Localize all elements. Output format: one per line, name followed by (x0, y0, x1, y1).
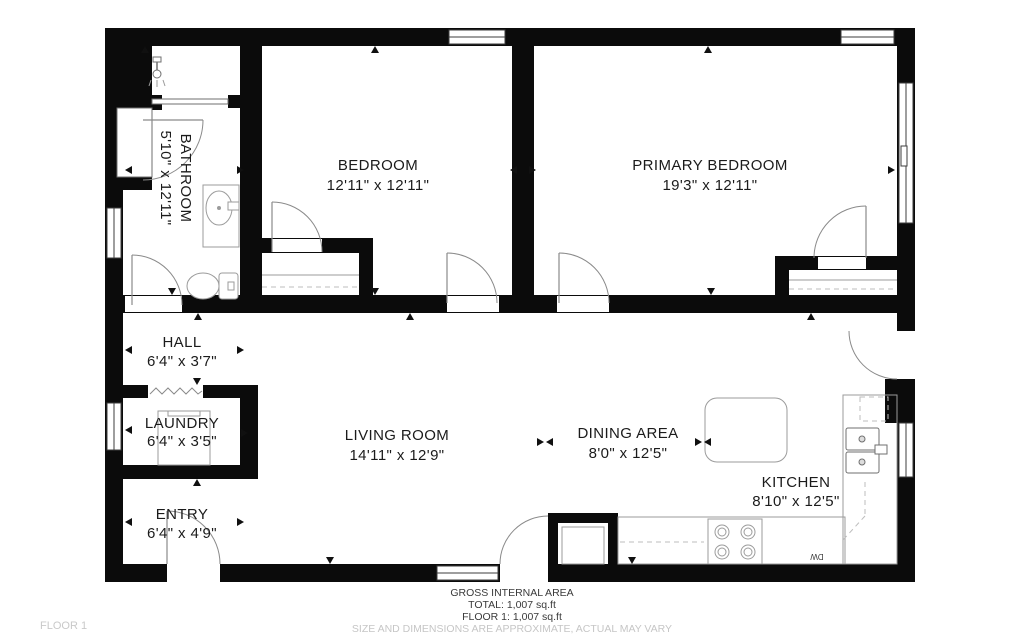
room-label-entry: ENTRY 6'4" x 4'9" (147, 506, 217, 542)
wall-bathroom-bedroom (240, 46, 262, 313)
room-name: DINING AREA (577, 425, 678, 442)
window-left-2 (107, 403, 121, 450)
dining-table (705, 398, 787, 462)
footer: GROSS INTERNAL AREA TOTAL: 1,007 sq.ft F… (40, 587, 672, 635)
bathroom-sink (203, 185, 239, 247)
room-dims: 14'11" x 12'9" (349, 447, 444, 464)
wall-shower-stub-right (228, 95, 240, 108)
room-dims: 12'11" x 12'11" (327, 177, 430, 194)
room-dims: 6'4" x 4'9" (147, 525, 217, 542)
window-top-1 (449, 30, 505, 44)
opening-primary-door (557, 296, 609, 312)
room-dims: 8'10" x 12'5" (752, 493, 839, 510)
opening-closet1-door (272, 239, 322, 252)
room-label-living-room: LIVING ROOM 14'11" x 12'9" (345, 427, 449, 464)
wall-closet2-left (775, 256, 789, 313)
window-top-2 (841, 30, 894, 44)
room-dims: 5'10" x 12'11" (157, 130, 174, 225)
wall-laundry-bottom (123, 465, 258, 479)
total-area-value: TOTAL: 1,007 sq.ft (468, 599, 556, 611)
room-dims: 19'3" x 12'11" (662, 177, 757, 194)
room-name: LAUNDRY (145, 415, 219, 432)
floor-plan: DW BATHROOM 5'10" x 12'11" BEDROOM 12'11… (0, 0, 1024, 640)
wall-right-jog (885, 379, 915, 423)
door-primary-closet (814, 206, 866, 258)
window-bottom (437, 566, 498, 580)
door-back-right (849, 331, 897, 379)
kitchen-sink (846, 428, 887, 473)
opening-bathroom-door (125, 296, 182, 312)
room-dims: 6'4" x 3'5" (147, 433, 217, 450)
room-name: BATHROOM (177, 134, 194, 223)
door-back-bottom (500, 516, 548, 564)
wall-bedroom-primary (512, 46, 534, 313)
opening-back-door-bottom (500, 564, 548, 582)
window-right-kitchen (899, 423, 913, 477)
opening-closet2-door (818, 257, 866, 269)
room-label-laundry: LAUNDRY 6'4" x 3'5" (145, 415, 219, 450)
primary-closet-shelf (789, 280, 897, 289)
room-label-kitchen: KITCHEN 8'10" x 12'5" (752, 474, 839, 510)
utility-closet-interior (558, 523, 608, 564)
room-name: ENTRY (156, 506, 209, 523)
room-name: LIVING ROOM (345, 427, 449, 444)
bathtub-niche (117, 108, 152, 177)
shower-screen (152, 99, 228, 104)
wall-corner-topleft (105, 28, 152, 108)
opening-bedroom-door (447, 296, 499, 312)
opening-laundry-bifold (148, 385, 203, 398)
opening-back-door-right (897, 331, 915, 379)
room-name: HALL (162, 334, 201, 351)
room-dims: 6'4" x 3'7" (147, 353, 217, 370)
wall-closet1-right (359, 238, 373, 313)
bedroom-closet-shelf (262, 275, 359, 287)
window-left-1 (107, 208, 121, 258)
room-dims: 8'0" x 12'5" (589, 445, 668, 462)
room-label-bathroom: BATHROOM 5'10" x 12'11" (157, 130, 194, 225)
floor-area-value: FLOOR 1: 1,007 sq.ft (462, 611, 562, 623)
wall-top (105, 28, 915, 46)
floor-plan-canvas: DW BATHROOM 5'10" x 12'11" BEDROOM 12'11… (0, 0, 1024, 640)
floor-label: FLOOR 1 (40, 620, 87, 632)
room-label-hall: HALL 6'4" x 3'7" (147, 334, 217, 370)
room-label-primary-bedroom: PRIMARY BEDROOM 19'3" x 12'11" (632, 157, 787, 194)
opening-entry-door (167, 564, 220, 582)
room-name: PRIMARY BEDROOM (632, 157, 787, 174)
room-label-bedroom: BEDROOM 12'11" x 12'11" (327, 157, 430, 194)
room-name: BEDROOM (338, 157, 418, 174)
room-label-dining-area: DINING AREA 8'0" x 12'5" (577, 425, 678, 462)
dishwasher-label: DW (810, 552, 824, 561)
gross-internal-area-label: GROSS INTERNAL AREA (450, 587, 573, 599)
stove-icon (708, 519, 762, 564)
room-name: KITCHEN (762, 474, 831, 491)
toilet (187, 273, 238, 299)
window-right-primary (899, 83, 913, 223)
disclaimer-text: SIZE AND DIMENSIONS ARE APPROXIMATE, ACT… (352, 623, 672, 635)
